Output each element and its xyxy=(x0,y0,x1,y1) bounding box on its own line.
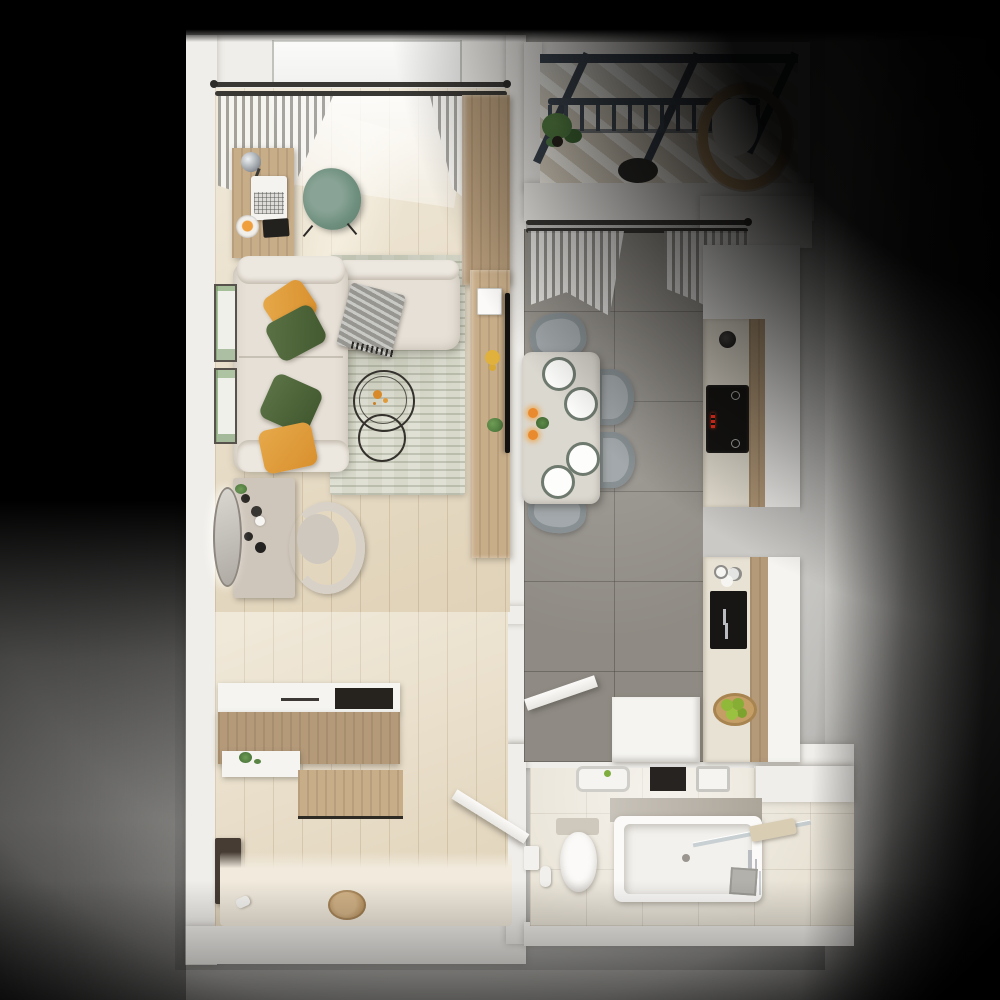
book-on-console xyxy=(477,288,502,315)
cooktop-burner-icon-2 xyxy=(731,439,740,448)
plant-pot xyxy=(552,136,563,147)
vanity-chair-seat xyxy=(297,514,339,564)
sofa-chaise-back xyxy=(335,260,459,280)
tall-cabinet-wood-upper xyxy=(749,319,765,507)
plate-1 xyxy=(542,357,576,391)
toilet-bowl xyxy=(560,832,597,892)
window-living xyxy=(272,40,462,86)
centerpiece-plant xyxy=(536,417,549,429)
perfume-4 xyxy=(255,542,266,553)
entry-mat xyxy=(220,852,512,926)
wall-print-1 xyxy=(214,284,237,362)
wall-bottom xyxy=(185,926,526,964)
console-plant xyxy=(487,418,503,432)
wardrobe xyxy=(462,95,510,285)
perfume-1 xyxy=(241,494,250,503)
tub-drain xyxy=(682,854,690,862)
spare-paper-roll xyxy=(540,866,551,887)
apartment-floorplan-render xyxy=(0,0,1000,1000)
bath-right-wall-block xyxy=(756,766,854,802)
sink-niche xyxy=(710,591,747,649)
coffee-table-small xyxy=(358,414,406,462)
wall-print-2 xyxy=(214,368,237,444)
perfume-3 xyxy=(244,532,253,541)
hallway-entry xyxy=(215,612,508,930)
bath-mat xyxy=(729,867,758,896)
kitchen-rod-front xyxy=(526,220,748,225)
candle-1 xyxy=(528,408,538,418)
shoe-cabinet-handle xyxy=(281,698,319,701)
shelf-plant xyxy=(239,752,252,763)
sink-faucet xyxy=(723,609,726,625)
washing-machine xyxy=(696,766,730,792)
round-mirror xyxy=(213,487,242,587)
floor-medallion xyxy=(328,890,366,920)
entry-shelf xyxy=(222,751,300,777)
vanity-sprig xyxy=(235,484,247,494)
balcony xyxy=(540,58,798,183)
cooktop-led-display xyxy=(711,413,715,428)
tall-cabinet-wood-lower xyxy=(750,557,768,762)
balcony-side-table xyxy=(618,158,658,183)
kettle xyxy=(719,331,736,348)
entry-wood-panel xyxy=(298,770,403,819)
plate-2 xyxy=(564,387,598,421)
towel-niche xyxy=(650,764,686,791)
shoe-cabinet-tray xyxy=(335,688,393,709)
cream-jar xyxy=(255,516,265,526)
plate-4 xyxy=(541,465,575,499)
candle-2 xyxy=(528,430,538,440)
bath-sink xyxy=(576,766,630,792)
wicker-chair-cushion xyxy=(712,98,758,156)
toilet-paper-holder xyxy=(524,846,539,870)
goldfish-bowl xyxy=(236,215,259,238)
rod-finial-left xyxy=(210,80,218,88)
soap-dish xyxy=(604,770,611,777)
curtain-rod-front xyxy=(215,82,507,87)
wall-tv xyxy=(505,293,510,453)
counter-gap xyxy=(703,507,800,557)
bathroom xyxy=(524,748,854,945)
wall-left xyxy=(185,35,217,965)
living-room xyxy=(215,88,510,612)
cooktop-burner-icon-1 xyxy=(731,391,740,400)
green-apples xyxy=(721,699,733,711)
fruit-bowl xyxy=(713,693,757,726)
table-decor-orange xyxy=(373,390,382,399)
rod-finial-right xyxy=(503,80,511,88)
notebook xyxy=(262,218,289,238)
kitchen-rod-finial xyxy=(744,218,752,226)
laptop-keyboard xyxy=(254,192,284,214)
kitchen-dining xyxy=(524,219,808,762)
yellow-vase xyxy=(485,350,500,365)
glass-cluster xyxy=(714,565,728,579)
